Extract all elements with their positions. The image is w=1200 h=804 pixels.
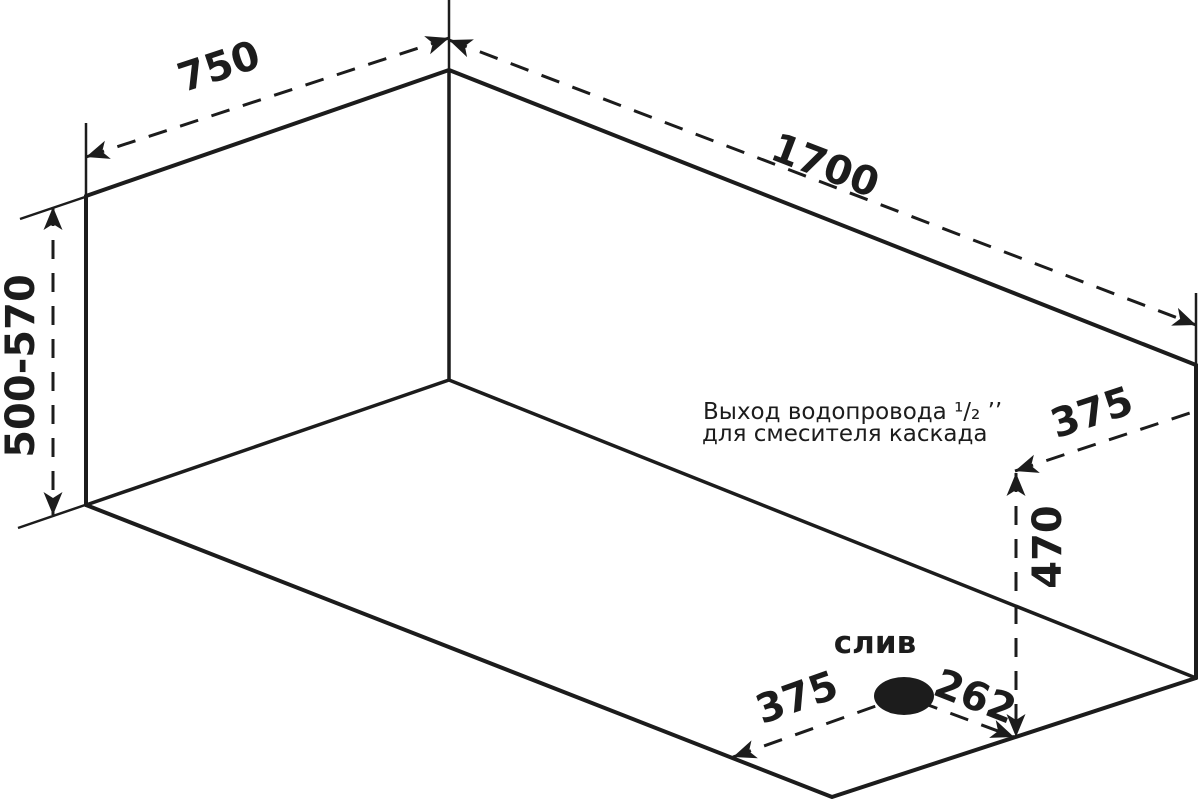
dim-label-1700: 1700 <box>765 125 885 208</box>
drain-label: слив <box>834 625 916 661</box>
arrowhead-outlet-height-top <box>1007 473 1026 496</box>
dim-label-750: 750 <box>172 32 266 102</box>
dim-label-height-range: 500-570 <box>0 274 44 458</box>
bathtub-dimension-diagram: 750 1700 500-570 375 470 375 262 слив Вы… <box>0 0 1200 804</box>
arrowhead-height-bottom <box>44 492 63 515</box>
dim-label-outlet-offset: 375 <box>1045 378 1139 448</box>
dim-line-750 <box>86 38 449 157</box>
outlet-note-line2: для смесителя каскада <box>702 421 988 447</box>
dim-label-outlet-height: 470 <box>1025 505 1071 589</box>
technical-drawing-canvas: 750 1700 500-570 375 470 375 262 слив Вы… <box>0 0 1200 804</box>
drain-hole-ellipse <box>874 677 934 715</box>
dim-label-drain-right: 262 <box>928 660 1023 733</box>
